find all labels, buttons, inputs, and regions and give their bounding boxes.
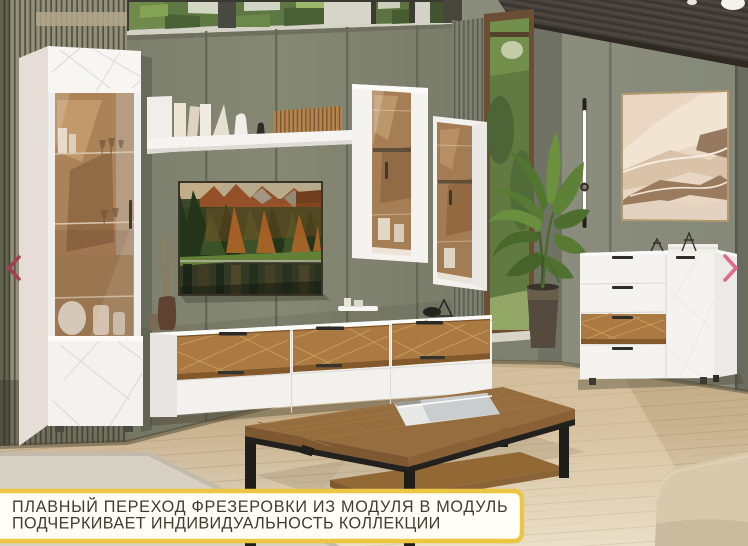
svg-text:ПЛАВНЫЙ ПЕРЕХОД ФРЕЗЕРОВКИ ИЗ: ПЛАВНЫЙ ПЕРЕХОД ФРЕЗЕРОВКИ ИЗ МОДУЛЯ В М… [12, 497, 508, 516]
svg-text:ПОДЧЕРКИВАЕТ ИНДИВИДУАЛЬНОСТЬ: ПОДЧЕРКИВАЕТ ИНДИВИДУАЛЬНОСТЬ КОЛЛЕКЦИИ [12, 515, 441, 533]
